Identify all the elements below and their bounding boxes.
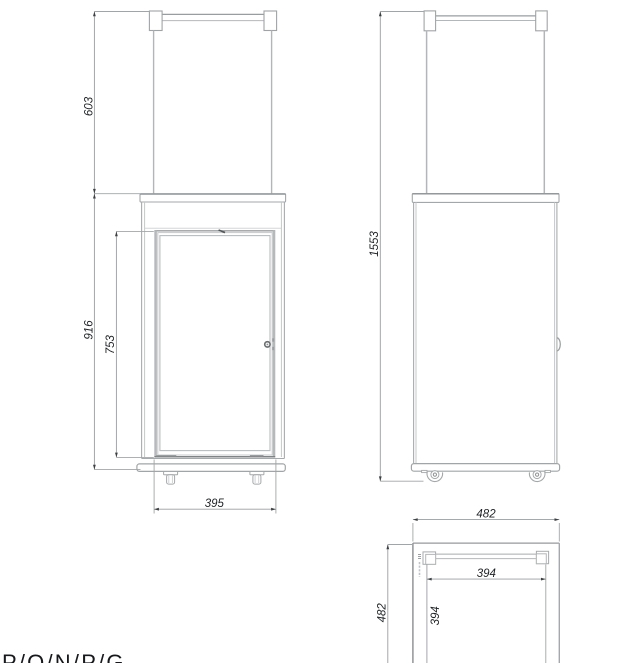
- svg-text:394: 394: [477, 568, 496, 580]
- svg-text:394: 394: [430, 606, 442, 625]
- svg-text:395: 395: [205, 498, 225, 510]
- svg-text:1553: 1553: [369, 231, 381, 257]
- svg-text:916: 916: [83, 320, 95, 340]
- svg-text:P/O/N/P/G: P/O/N/P/G: [2, 650, 126, 663]
- svg-text:482: 482: [377, 603, 389, 623]
- svg-text:603: 603: [83, 96, 95, 116]
- svg-text:753: 753: [105, 335, 117, 355]
- svg-text:482: 482: [476, 508, 496, 520]
